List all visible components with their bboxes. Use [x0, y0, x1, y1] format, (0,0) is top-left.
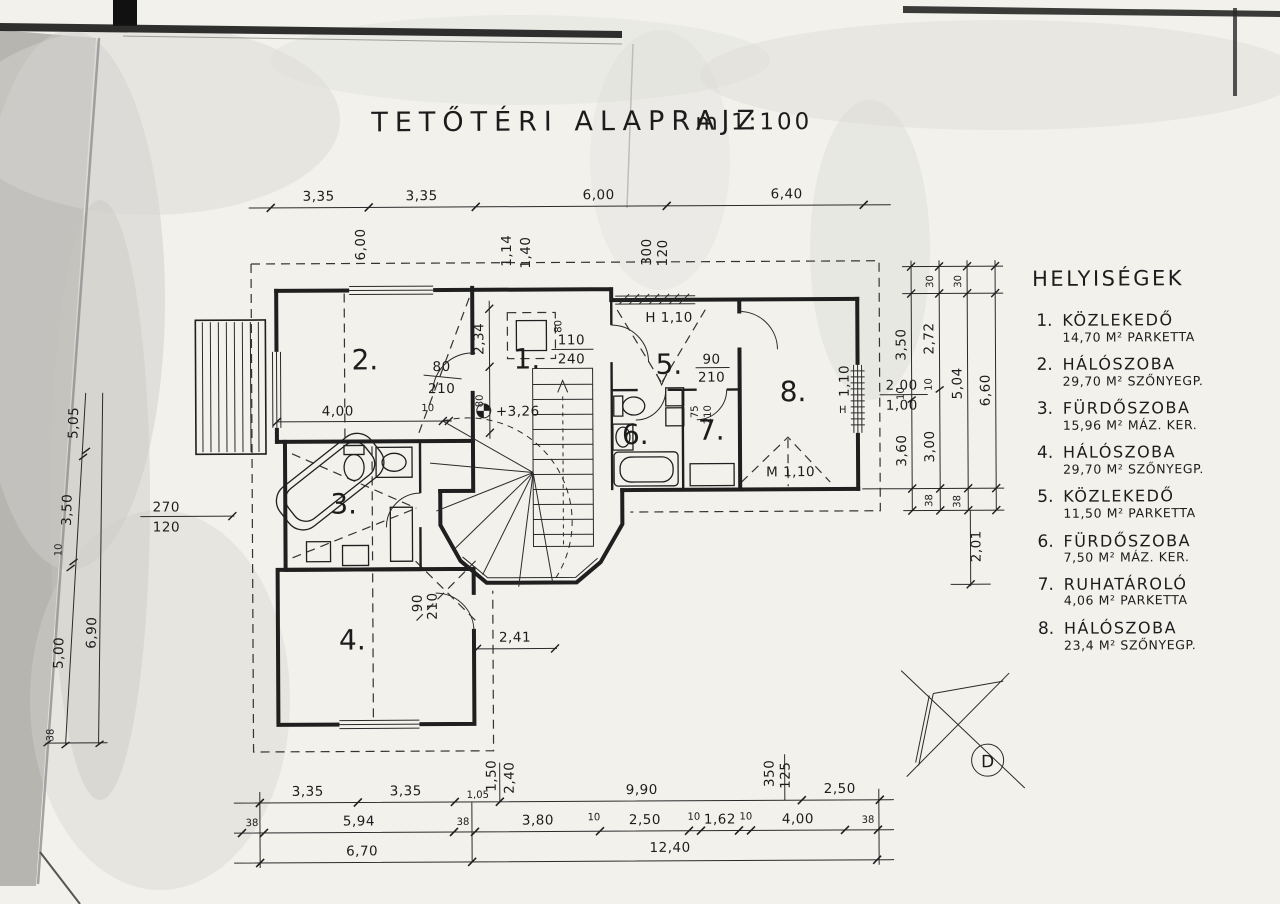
legend-item-name: HÁLÓSZOBA: [1064, 618, 1177, 638]
scanned-floorplan-sheet: TETŐTÉRI ALAPRAJZ m 1:100: [0, 0, 1280, 904]
dim-label: 300: [639, 238, 655, 265]
legend-item-number: 2.: [1037, 355, 1053, 375]
dim-label: 38: [924, 494, 935, 507]
compass-south-letter: D: [981, 752, 994, 772]
dim-label: 5,00: [51, 637, 68, 670]
dim-label: 1,14: [499, 235, 515, 267]
dim-label: 38: [246, 818, 259, 829]
dim-label: 270: [153, 499, 180, 515]
dim-label: 80: [553, 320, 564, 333]
legend-item-name: KÖZLEKEDŐ: [1062, 309, 1173, 330]
dim-label: 38: [952, 495, 963, 508]
dim-label: 1,62: [704, 812, 736, 828]
dim-label: 3,35: [292, 784, 324, 800]
legend-item-number: 3.: [1037, 399, 1053, 419]
dim-label: 3,50: [893, 329, 909, 361]
dim-label: 2,34: [471, 323, 487, 355]
level-value: +3,26: [496, 404, 540, 420]
dim-label: 2,40: [502, 762, 518, 794]
drawing-title: TETŐTÉRI ALAPRAJZ m 1:100: [370, 104, 812, 138]
dim-label: 1,50: [484, 760, 500, 792]
dim-label: 6,00: [583, 187, 615, 203]
door-size-label: 80: [432, 359, 450, 375]
dim-label: 120: [655, 239, 671, 266]
legend-item-name: KÖZLEKEDŐ: [1063, 485, 1174, 506]
room-number-6: 6.: [622, 418, 649, 451]
dim-label: 3,35: [303, 189, 335, 205]
room-number-1: 1.: [513, 343, 540, 376]
height-label: M 1,10: [766, 464, 815, 480]
legend-item-detail: 11,50 M² PARKETTA: [1063, 505, 1196, 521]
dim-label: 10: [588, 812, 601, 823]
legend-item-name: HÁLÓSZOBA: [1063, 354, 1176, 374]
legend-item-name: FÜRDŐSZOBA: [1063, 397, 1191, 418]
dim-label: 240: [558, 351, 585, 367]
dim-label: 120: [153, 519, 180, 535]
dim-label: 3,80: [522, 812, 554, 828]
room-number-5: 5.: [655, 348, 682, 381]
legend-item-name: FÜRDŐSZOBA: [1063, 530, 1191, 551]
dim-label: 6,40: [771, 186, 803, 202]
wall-room2-bottom: [277, 441, 473, 442]
legend-item-number: 6.: [1037, 532, 1053, 552]
dim-label: 2,50: [629, 812, 661, 828]
legend-title: HELYISÉGEK: [1032, 265, 1184, 291]
door-size-label: 90: [702, 352, 720, 368]
dim-label: 9,90: [626, 782, 658, 798]
floor-plan-drawing: TETŐTÉRI ALAPRAJZ m 1:100: [0, 0, 1280, 904]
legend-item-detail: 15,96 M² MÁZ. KER.: [1063, 417, 1198, 433]
door-size-label: 210: [703, 405, 714, 424]
dim-label: 125: [778, 762, 794, 789]
dim-label: 1,10: [837, 365, 853, 397]
room-number-8: 8.: [780, 375, 807, 408]
title-scale: m 1:100: [695, 109, 812, 136]
legend-item-number: 4.: [1037, 443, 1053, 463]
dim-label: 10: [740, 811, 753, 822]
dim-label: 2,72: [921, 322, 937, 354]
dim-label: 3,60: [894, 435, 910, 467]
legend-item-detail: 23,4 M² SZŐNYEGP.: [1064, 637, 1196, 653]
dim-label: 30: [925, 275, 936, 288]
legend-item-detail: 7,50 M² MÁZ. KER.: [1064, 549, 1190, 565]
legend-item-detail: 29,70 M² SZŐNYEGP.: [1063, 461, 1204, 477]
dim-label: 38: [862, 815, 875, 826]
dim-label: 3,35: [406, 188, 438, 204]
legend-item-name: RUHATÁROLÓ: [1064, 574, 1188, 594]
dim-label: 4,00: [782, 811, 814, 827]
legend-item-number: 8.: [1038, 619, 1054, 639]
dim-label: 12,40: [649, 840, 690, 856]
door-size-label: 210: [698, 370, 725, 386]
dim-label: 2,41: [499, 630, 531, 646]
dim-label: 350: [762, 760, 778, 787]
legend-item-number: 7.: [1038, 575, 1054, 595]
dim-label: 6,70: [346, 843, 378, 859]
dim-label: 2,01: [968, 530, 984, 562]
dim-label: 6,00: [353, 228, 369, 260]
door-size-label: 210: [425, 592, 441, 619]
legend-item-detail: 4,06 M² PARKETTA: [1064, 592, 1188, 608]
legend-item-detail: 14,70 M² PARKETTA: [1062, 329, 1195, 345]
dim-label: 3,00: [922, 430, 938, 462]
dim-label: 3,35: [390, 783, 422, 799]
dim-label: 5,94: [343, 813, 375, 829]
dim-label: 10: [688, 812, 701, 823]
dim-label: 1,40: [518, 237, 534, 269]
door-size-label: 90: [410, 594, 426, 612]
scan-right-edge-mark: [1233, 8, 1237, 96]
dim-label: 30: [953, 275, 964, 288]
door-size-label: 75: [690, 405, 701, 418]
legend-item-detail: 29,70 M² SZŐNYEGP.: [1063, 373, 1204, 389]
height-label: H 1,10: [645, 310, 693, 326]
scan-corner-mark: [113, 0, 137, 26]
dim-label: 10: [421, 403, 434, 414]
dim-label: 80: [475, 394, 486, 407]
legend-item-name: HÁLÓSZOBA: [1063, 442, 1176, 462]
dim-label: 1,00: [886, 398, 918, 414]
dim-label: 6,90: [83, 616, 100, 649]
room-number-4: 4.: [339, 623, 366, 656]
room-number-2: 2.: [351, 343, 378, 376]
dim-label: 6,60: [978, 374, 994, 406]
dim-label: 4,00: [322, 403, 354, 419]
dim-label: 3,50: [59, 494, 76, 527]
dim-label: 38: [45, 728, 56, 741]
dim-label: 2,00: [886, 378, 918, 394]
dim-label: 110: [558, 332, 585, 348]
dim-label: H: [839, 405, 847, 416]
dim-label: 5,04: [950, 367, 966, 399]
dim-label: 5,05: [65, 407, 82, 440]
dim-label: 10: [924, 378, 935, 391]
legend-item-number: 5.: [1037, 487, 1053, 507]
room-number-3: 3.: [330, 487, 357, 520]
dim-label: 38: [457, 817, 470, 828]
dim-label: 2,50: [824, 781, 856, 797]
door-size-label: 210: [428, 381, 455, 397]
legend-item-number: 1.: [1036, 311, 1052, 331]
dim-label: 10: [53, 543, 64, 556]
